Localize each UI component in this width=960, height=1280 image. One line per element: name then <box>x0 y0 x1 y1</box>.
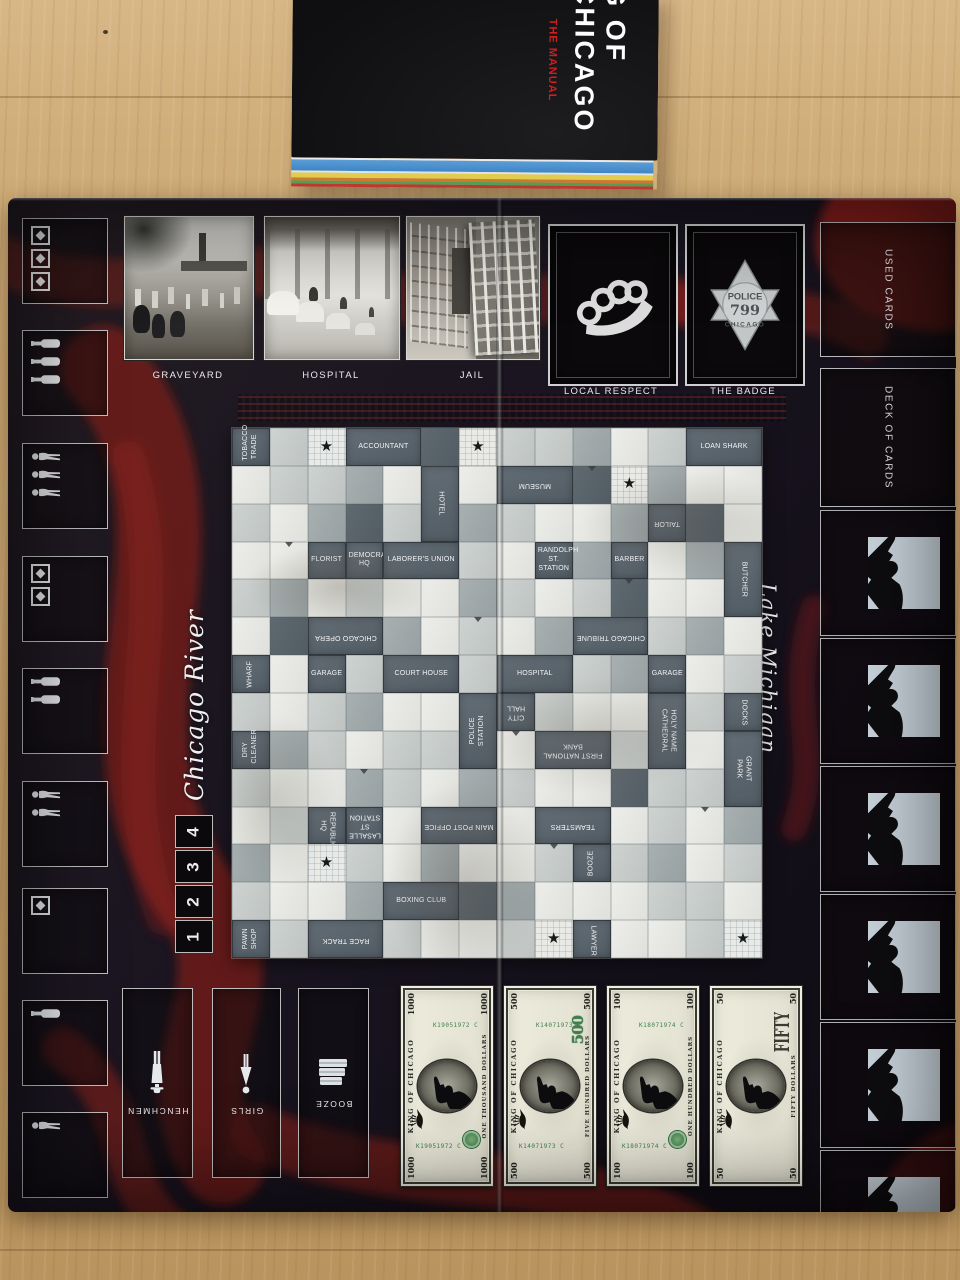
girls-space: GIRLS <box>212 988 281 1178</box>
star-symbol: ★ <box>736 930 750 949</box>
street-block <box>535 428 573 466</box>
bill-serial-number: K19051972 C <box>433 1022 478 1029</box>
used-cards-space: USED CARDS <box>820 222 956 357</box>
street-block <box>383 579 421 617</box>
street-block <box>232 807 270 845</box>
street-block <box>308 693 346 731</box>
city-space: GARAGE <box>648 655 686 693</box>
space-label: MUSEUM <box>500 480 570 489</box>
girl-icon <box>237 1050 257 1094</box>
space-label: DRY CLEANER <box>242 736 260 764</box>
bill-bank-name: KING OF CHICAGO <box>613 986 621 1186</box>
gangster-card-photo <box>868 921 940 993</box>
space-label: GARAGE <box>651 670 683 679</box>
bill-500: 500500500500KING OF CHICAGOFIVE HUNDRED … <box>503 985 595 1185</box>
street-block <box>648 428 686 466</box>
street-block <box>232 617 270 655</box>
city-space: FLORIST <box>308 542 346 580</box>
manual-subtitle: THE MANUAL <box>546 19 559 102</box>
street-block <box>648 920 686 958</box>
star-space: ★ <box>308 428 346 466</box>
street-block <box>346 769 384 807</box>
wood-knot <box>103 30 108 34</box>
city-space: DOCKS <box>724 693 762 731</box>
street-block <box>459 504 497 542</box>
space-label: FLORIST <box>311 556 343 565</box>
street-block <box>535 882 573 920</box>
bill-big-label: FIFTY <box>770 1012 794 1052</box>
street-block <box>421 617 459 655</box>
gangster-card-photo <box>868 1177 940 1212</box>
street-block <box>308 769 346 807</box>
star-symbol: ★ <box>320 438 334 457</box>
gangster-silhouette-icon <box>868 537 940 609</box>
street-block <box>459 655 497 693</box>
photo-detail <box>468 220 540 357</box>
photo-detail <box>452 248 470 313</box>
city-space: REPUBLICAN HQ <box>308 807 346 845</box>
space-label: TOBACCO TRADE <box>242 433 260 461</box>
gangster-card <box>820 638 956 764</box>
street-block <box>648 542 686 580</box>
street-block <box>308 466 346 504</box>
city-space: BUTCHER <box>724 542 762 618</box>
manual-cover: G OF CHICAGO THE MANUAL <box>291 0 658 161</box>
gangster-silhouette-icon <box>868 1049 940 1121</box>
space-label: CHICAGO TRIBUNE <box>576 632 646 641</box>
photo-detail <box>133 305 150 333</box>
bill-portrait <box>521 1060 579 1112</box>
street-block <box>383 769 421 807</box>
supply-space-girl-x2 <box>22 781 108 867</box>
star-space: ★ <box>308 844 346 882</box>
street-block <box>270 920 308 958</box>
manual-page-edges <box>291 157 654 189</box>
henchman-icon <box>148 1050 168 1094</box>
street-block <box>611 731 649 769</box>
space-label: CHICAGO OPERA <box>311 632 381 641</box>
street-block <box>724 844 762 882</box>
chicago-river-label: Chicago River <box>180 556 209 801</box>
street-block <box>232 504 270 542</box>
street-block <box>724 882 762 920</box>
street-block <box>724 466 762 504</box>
deck-of-cards-space: DECK OF CARDS <box>820 368 956 507</box>
street-block <box>421 579 459 617</box>
space-label: COURT HOUSE <box>386 670 456 679</box>
street-block <box>611 504 649 542</box>
city-space: HOLY NAME CATHEDRAL <box>648 693 686 769</box>
space-label: BARBER <box>614 556 646 565</box>
street-block <box>611 920 649 958</box>
girl-icon <box>31 789 61 800</box>
bill-bank-name: KING OF CHICAGO <box>716 986 724 1186</box>
space-label: HOTEL <box>436 485 445 523</box>
crow-icon-wrap <box>513 1108 528 1130</box>
crow-icon <box>616 1108 631 1130</box>
star-symbol: ★ <box>471 438 485 457</box>
street-block <box>686 731 724 769</box>
street-block <box>232 769 270 807</box>
street-block <box>346 655 384 693</box>
street-block <box>270 844 308 882</box>
street-block <box>686 807 724 845</box>
gangster-silhouette-icon <box>868 921 940 993</box>
street-block <box>232 542 270 580</box>
jail-photo <box>406 216 540 360</box>
space-label: TAILOR <box>651 518 683 527</box>
city-space: TEAMSTERS <box>535 807 611 845</box>
crow-icon-wrap <box>616 1108 631 1130</box>
graveyard-label: GRAVEYARD <box>124 370 252 381</box>
space-label: ACCOUNTANT <box>349 443 419 452</box>
street-block <box>611 428 649 466</box>
street-block <box>383 731 421 769</box>
space-label: RACE TRACK <box>311 935 381 944</box>
city-space: CHICAGO OPERA <box>308 617 384 655</box>
girl-icon <box>31 469 61 480</box>
street-block <box>270 655 308 693</box>
star-symbol: ★ <box>320 854 334 873</box>
hospital-label: HOSPITAL <box>264 370 398 381</box>
city-space: POLICE STATION <box>459 693 497 769</box>
city-space: WHARF <box>232 655 270 693</box>
gangster-card-photo <box>868 793 940 865</box>
street-block <box>611 807 649 845</box>
bottle-icon <box>31 374 61 385</box>
the-badge-space: POLICE 799 CHICAGO <box>685 224 805 386</box>
star-space: ★ <box>611 466 649 504</box>
round-track-space-1: 1 <box>175 920 213 953</box>
street-block <box>270 769 308 807</box>
gangster-silhouette-icon <box>734 1061 785 1109</box>
resource-label: HENCHMEN <box>127 1106 189 1116</box>
girl-icon <box>31 487 61 498</box>
street-block <box>232 466 270 504</box>
gangster-silhouette-icon <box>528 1061 579 1109</box>
street-block <box>724 617 762 655</box>
street-block <box>383 844 421 882</box>
star-symbol: ★ <box>547 930 561 949</box>
street-block <box>308 504 346 542</box>
street-block <box>648 807 686 845</box>
street-block <box>724 807 762 845</box>
street-block <box>573 542 611 580</box>
street-block <box>459 466 497 504</box>
bill-value-text: ONE HUNDRED DOLLARS <box>688 986 694 1186</box>
street-block <box>270 579 308 617</box>
city-space: RANDOLPH ST. STATION <box>535 542 573 580</box>
street-block <box>383 617 421 655</box>
street-block <box>686 920 724 958</box>
badge-number: 799 <box>730 303 760 319</box>
girl-icon <box>31 807 61 818</box>
street-block <box>346 844 384 882</box>
street-block <box>573 579 611 617</box>
bill-bank-name: KING OF CHICAGO <box>407 986 415 1186</box>
manual-booklet: G OF CHICAGO THE MANUAL <box>291 0 659 190</box>
street-block <box>573 428 611 466</box>
bottle-icon <box>31 338 61 349</box>
gangster-card <box>820 510 956 636</box>
supply-space-diamond-x2 <box>22 556 108 642</box>
supply-space-girl-x1 <box>22 1112 108 1198</box>
crow-icon <box>410 1108 425 1130</box>
resource-space-content: HENCHMEN <box>123 989 192 1177</box>
city-space: LABORER'S UNION <box>383 542 459 580</box>
street-block <box>535 769 573 807</box>
street-block <box>724 504 762 542</box>
street-block <box>421 693 459 731</box>
round-number: 4 <box>184 827 204 836</box>
street-block <box>270 731 308 769</box>
street-block <box>648 769 686 807</box>
bill-serial-number: K18071974 C <box>622 1143 667 1150</box>
bill-bank-name: KING OF CHICAGO <box>510 986 518 1186</box>
resource-label: BOOZE <box>315 1099 353 1109</box>
star-space: ★ <box>724 920 762 958</box>
space-label: DEMOCRATIC HQ <box>349 552 381 570</box>
round-track-space-3: 3 <box>175 850 213 883</box>
supply-space-bottle-x2 <box>22 668 108 754</box>
diamond-icon <box>31 226 50 245</box>
booze-space: BOOZE <box>298 988 369 1178</box>
space-label: BOOZE <box>587 849 596 877</box>
manual-title: G OF CHICAGO <box>567 0 631 160</box>
street-block <box>232 844 270 882</box>
board-fold-crease <box>496 198 504 1212</box>
street-block <box>686 466 724 504</box>
supply-space-diamond-x3 <box>22 218 108 304</box>
supply-space-bottle-x1 <box>22 1000 108 1086</box>
police-badge-icon: POLICE 799 CHICAGO <box>702 256 788 354</box>
space-label: GRANT PARK <box>734 750 752 788</box>
city-space: DEMOCRATIC HQ <box>346 542 384 580</box>
gangster-card <box>820 766 956 892</box>
bill-50: 50505050KING OF CHICAGOFIFTY DOLLARSFIFT… <box>709 985 801 1185</box>
street-block <box>346 731 384 769</box>
crow-icon <box>719 1108 734 1130</box>
street-block <box>686 579 724 617</box>
street-block <box>686 769 724 807</box>
deck-of-cards-label: DECK OF CARDS <box>883 386 894 489</box>
city-space: TOBACCO TRADE <box>232 428 270 466</box>
resource-label: GIRLS <box>230 1106 264 1116</box>
street-block <box>611 693 649 731</box>
round-track-space-4: 4 <box>175 815 213 848</box>
gangster-card <box>820 1022 956 1148</box>
bill-1000: 1000100010001000KING OF CHICAGOONE THOUS… <box>400 985 492 1185</box>
street-block <box>611 882 649 920</box>
crow-icon-wrap <box>719 1108 734 1130</box>
street-block <box>686 617 724 655</box>
street-block <box>648 844 686 882</box>
diamond-icon <box>31 896 50 915</box>
street-block <box>346 693 384 731</box>
street-block <box>270 617 308 655</box>
the-badge-label: THE BADGE <box>680 386 806 397</box>
bill-serial-number: K19051972 C <box>416 1143 461 1150</box>
bill-face: 100100100100KING OF CHICAGOONE HUNDRED D… <box>606 985 700 1187</box>
bill-portrait <box>727 1060 785 1112</box>
street-block <box>346 504 384 542</box>
crow-icon <box>513 1108 528 1130</box>
street-block <box>459 920 497 958</box>
gangster-card-photo <box>868 665 940 737</box>
crates-icon <box>317 1057 351 1087</box>
photo-detail <box>181 261 247 271</box>
space-label: MAIN POST OFFICE <box>424 821 494 830</box>
diamond-icon <box>31 564 50 583</box>
street-block <box>421 428 459 466</box>
street-block <box>611 579 649 617</box>
city-space: PAWN SHOP <box>232 920 270 958</box>
bottle-icon <box>31 694 61 705</box>
fine-print-text <box>238 394 786 422</box>
street-block <box>346 466 384 504</box>
gangster-card-photo <box>868 537 940 609</box>
street-block <box>573 466 611 504</box>
street-block <box>383 693 421 731</box>
city-space: GRANT PARK <box>724 731 762 807</box>
bill-value-text: ONE THOUSAND DOLLARS <box>482 986 488 1186</box>
street-block <box>270 542 308 580</box>
street-block <box>648 617 686 655</box>
space-label: PAWN SHOP <box>242 925 260 953</box>
gangster-card <box>820 894 956 1020</box>
space-label: TEAMSTERS <box>538 821 608 830</box>
badge-text-bottom: CHICAGO <box>725 322 765 329</box>
screenshot-root: G OF CHICAGO THE MANUAL <box>0 0 960 1280</box>
street-block <box>383 807 421 845</box>
brass-knuckles-icon <box>569 263 657 347</box>
city-space: HOSPITAL <box>497 655 573 693</box>
street-block <box>535 579 573 617</box>
city-space: COURT HOUSE <box>383 655 459 693</box>
bill-face: 500500500500KING OF CHICAGOFIVE HUNDRED … <box>503 985 597 1187</box>
round-number: 1 <box>184 932 204 941</box>
bill-serial-number: K18071974 C <box>639 1022 684 1029</box>
space-label: HOSPITAL <box>500 670 570 679</box>
city-space: LAWYER <box>573 920 611 958</box>
street-block <box>270 428 308 466</box>
city-space: RACE TRACK <box>308 920 384 958</box>
space-label: LOAN SHARK <box>689 443 759 452</box>
treasury-seal-icon <box>669 1131 686 1148</box>
street-block <box>724 655 762 693</box>
city-space: ACCOUNTANT <box>346 428 422 466</box>
city-space: LOAN SHARK <box>686 428 762 466</box>
hospital-photo <box>264 216 400 360</box>
bill-serial-number: K14071973 C <box>519 1143 564 1150</box>
supply-space-girl-x3 <box>22 443 108 529</box>
supply-space-bottle-x3 <box>22 330 108 416</box>
street-block <box>648 579 686 617</box>
round-track-space-2: 2 <box>175 885 213 918</box>
street-block <box>346 579 384 617</box>
street-block <box>573 655 611 693</box>
space-label: HOLY NAME CATHEDRAL <box>659 709 677 753</box>
street-block <box>686 655 724 693</box>
gangster-card <box>820 1150 956 1212</box>
city-space: FIRST NATIONAL BANK <box>535 731 611 769</box>
city-space: BOXING CLUB <box>383 882 459 920</box>
city-space: LASALLE ST STATION <box>346 807 384 845</box>
used-cards-label: USED CARDS <box>883 249 894 331</box>
street-block <box>535 693 573 731</box>
street-block <box>270 504 308 542</box>
space-label: WHARF <box>247 660 256 688</box>
bill-portrait <box>624 1060 682 1112</box>
space-label: CITY HALL <box>500 703 532 721</box>
bill-portrait <box>418 1060 476 1112</box>
bill-face: 50505050KING OF CHICAGOFIFTY DOLLARSFIFT… <box>709 985 803 1187</box>
street-block <box>270 807 308 845</box>
resource-space-content: GIRLS <box>213 989 280 1177</box>
street-block <box>346 882 384 920</box>
graveyard-photo <box>124 216 254 360</box>
star-symbol: ★ <box>623 475 637 494</box>
street-block <box>535 844 573 882</box>
street-block <box>232 693 270 731</box>
game-board: GRAVEYARD HOSPITAL JAIL POLICE <box>8 198 956 1212</box>
street-block <box>308 882 346 920</box>
street-block <box>459 617 497 655</box>
street-block <box>535 504 573 542</box>
street-block <box>459 882 497 920</box>
gangster-silhouette-icon <box>868 1177 940 1212</box>
street-block <box>308 579 346 617</box>
street-block <box>686 504 724 542</box>
bottle-icon <box>31 356 61 367</box>
street-block <box>383 920 421 958</box>
street-block <box>270 882 308 920</box>
city-space: BARBER <box>611 542 649 580</box>
jail-label: JAIL <box>406 370 538 381</box>
photo-detail <box>267 291 299 315</box>
diamond-icon <box>31 587 50 606</box>
street-block <box>611 769 649 807</box>
street-block <box>232 579 270 617</box>
city-space: GARAGE <box>308 655 346 693</box>
diamond-icon <box>31 249 50 268</box>
city-space: HOTEL <box>421 466 459 542</box>
bill-big-label: 500 <box>569 1016 587 1044</box>
space-label: REPUBLICAN HQ <box>318 812 336 840</box>
city-space: MAIN POST OFFICE <box>421 807 497 845</box>
street-block <box>459 579 497 617</box>
space-label: LAWYER <box>587 925 596 953</box>
street-block <box>421 844 459 882</box>
local-respect-space <box>548 224 678 386</box>
street-block <box>270 466 308 504</box>
street-block <box>648 882 686 920</box>
gangster-silhouette-icon <box>868 793 940 865</box>
resource-space-content: BOOZE <box>299 989 368 1177</box>
street-block <box>421 731 459 769</box>
round-number: 3 <box>184 862 204 871</box>
street-block <box>573 769 611 807</box>
street-block <box>232 882 270 920</box>
street-block <box>383 466 421 504</box>
star-space: ★ <box>459 428 497 466</box>
street-block <box>686 693 724 731</box>
city-space: MUSEUM <box>497 466 573 504</box>
star-space: ★ <box>535 920 573 958</box>
street-block <box>535 617 573 655</box>
street-block <box>459 769 497 807</box>
street-block <box>573 693 611 731</box>
